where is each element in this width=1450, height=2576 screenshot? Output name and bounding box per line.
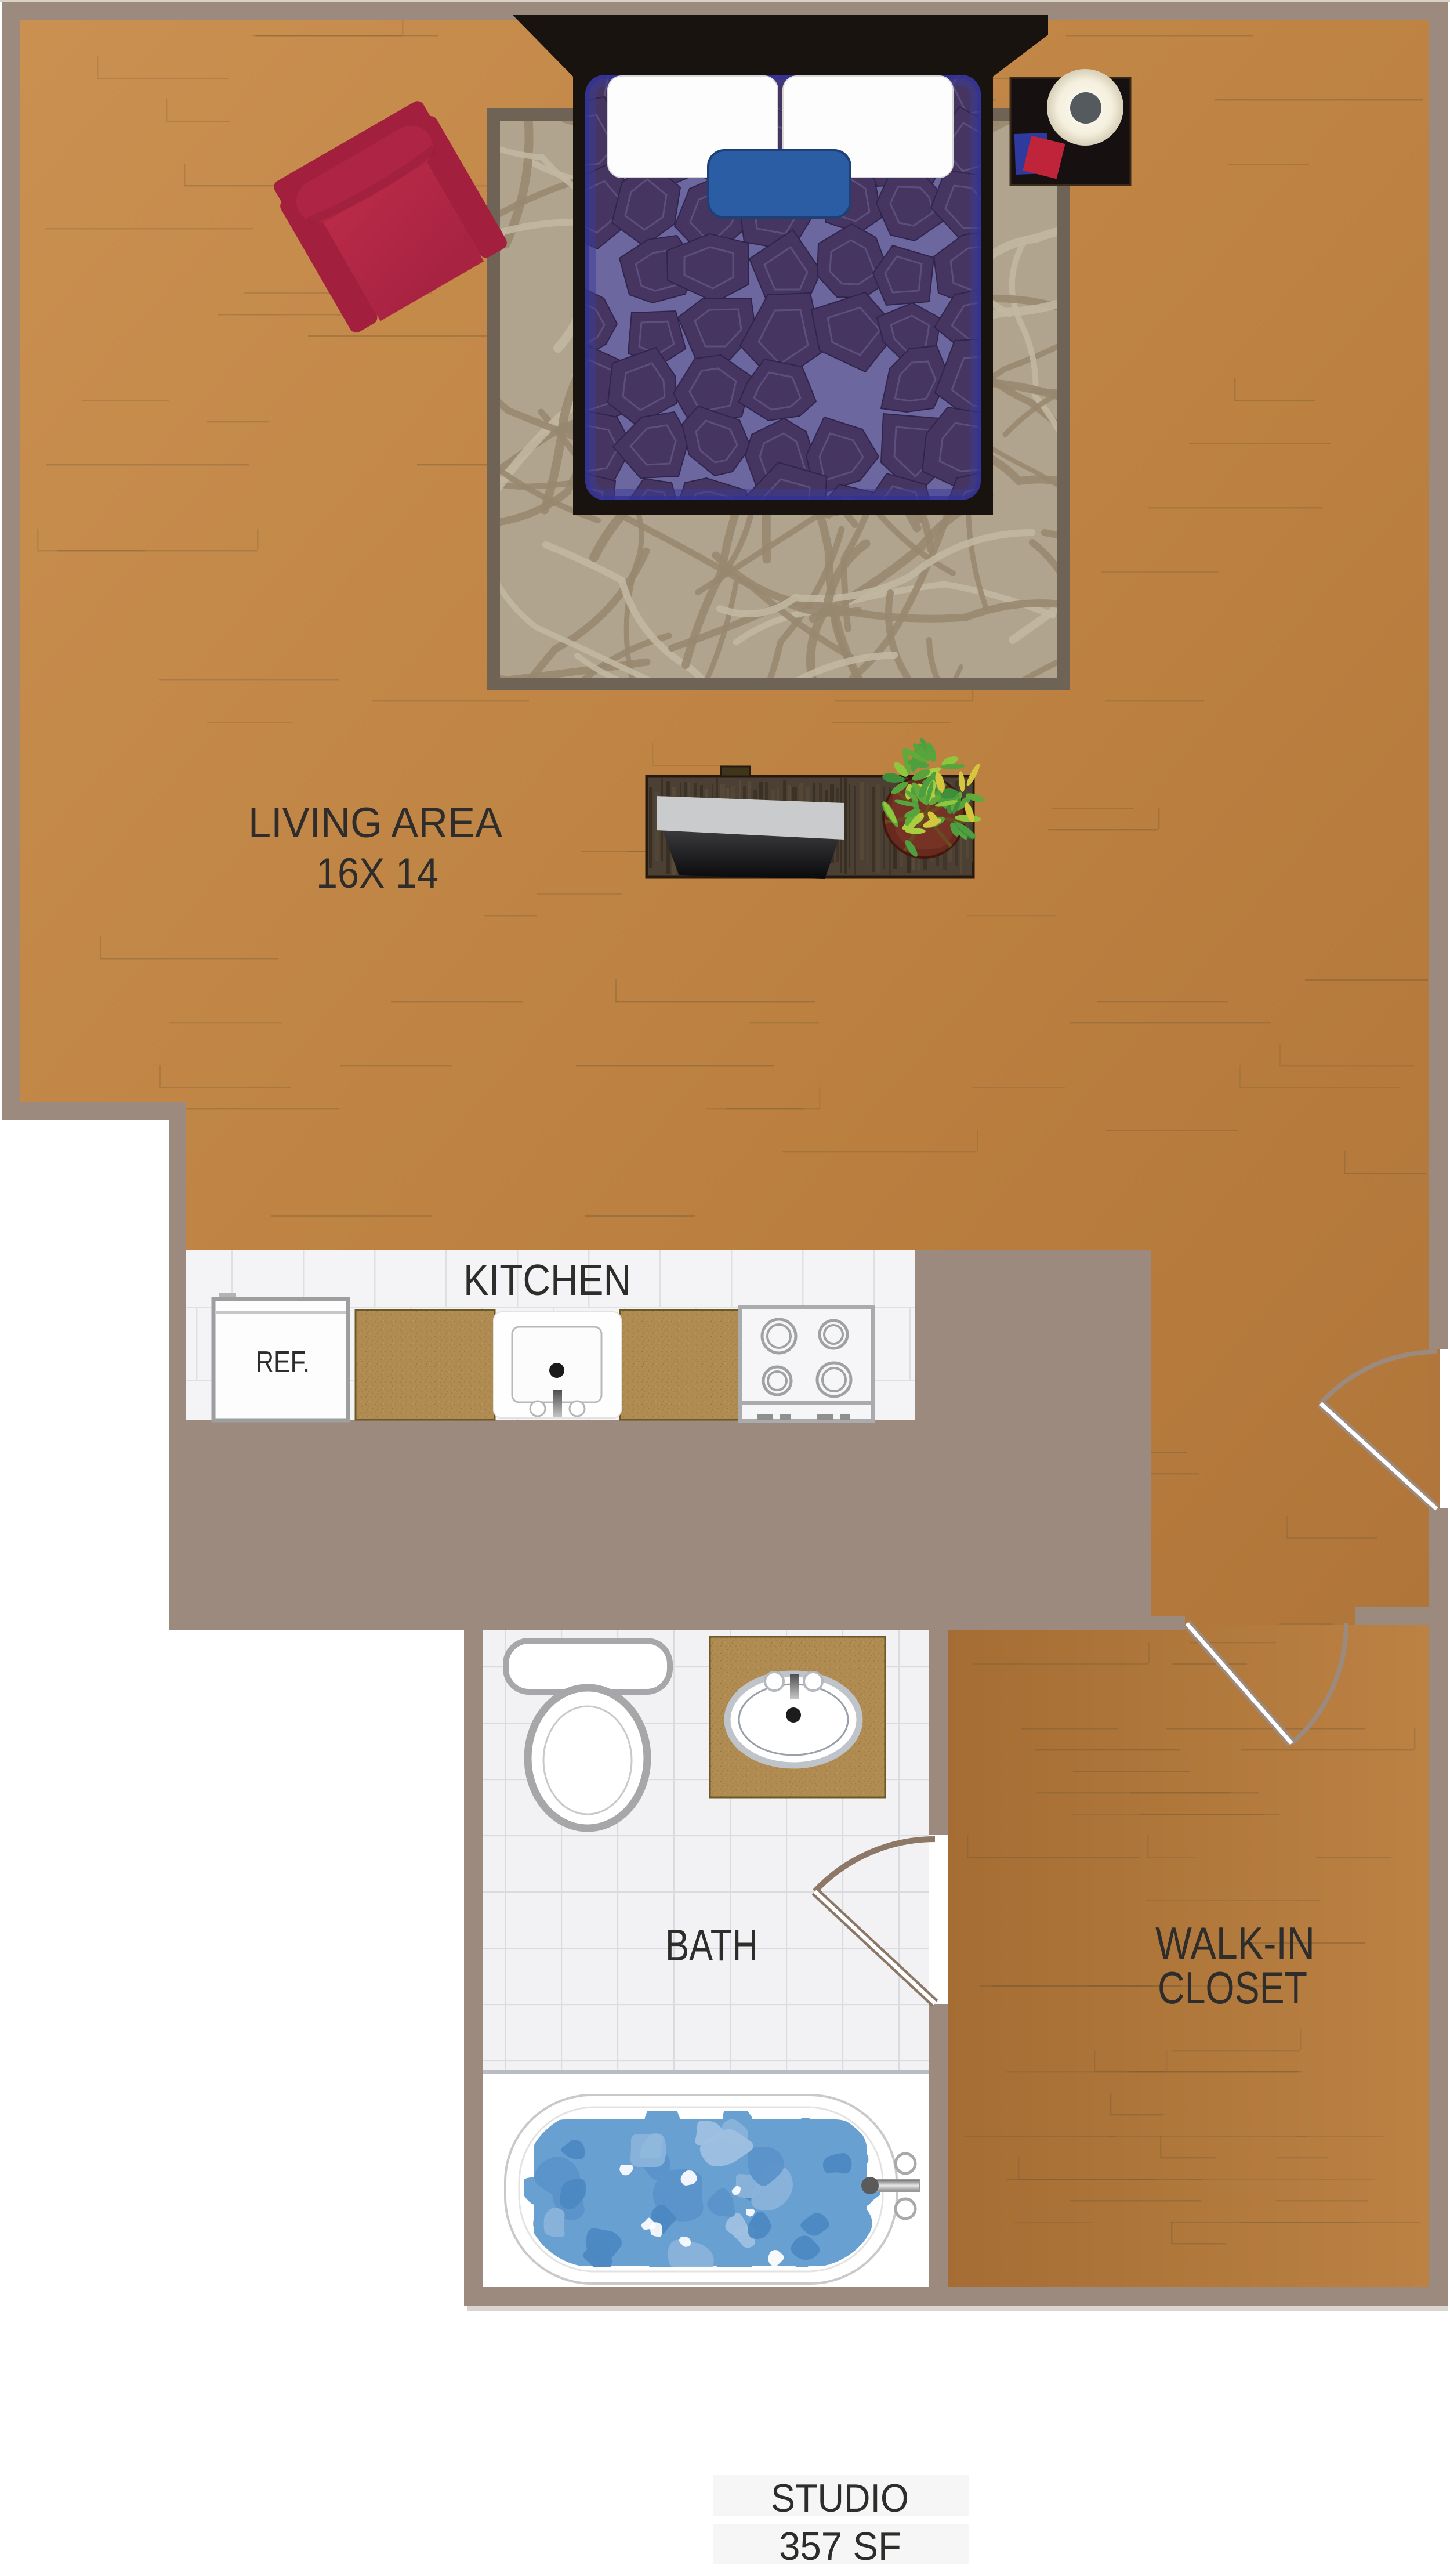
svg-text:STUDIO: STUDIO — [771, 2476, 909, 2520]
svg-text:KITCHEN: KITCHEN — [463, 1256, 631, 1304]
svg-text:BATH: BATH — [665, 1920, 758, 1970]
svg-text:CLOSET: CLOSET — [1158, 1962, 1307, 2013]
svg-text:WALK-IN: WALK-IN — [1155, 1917, 1315, 1969]
svg-text:16X 14: 16X 14 — [316, 850, 438, 897]
svg-text:357 SF: 357 SF — [779, 2524, 901, 2568]
svg-text:LIVING AREA: LIVING AREA — [248, 799, 502, 846]
svg-text:REF.: REF. — [256, 1345, 310, 1379]
